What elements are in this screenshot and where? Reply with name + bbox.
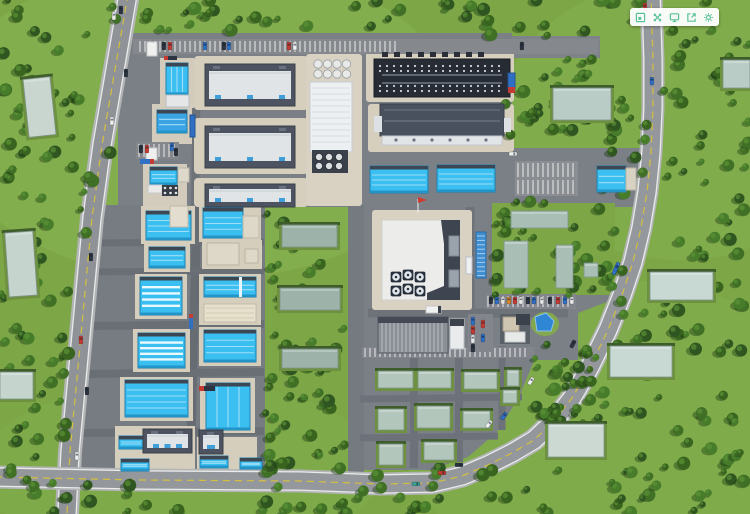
trees <box>574 363 579 368</box>
trees <box>696 246 699 249</box>
truck-body <box>508 73 515 89</box>
trees <box>560 126 564 130</box>
road-car <box>79 336 83 344</box>
trees <box>2 338 6 342</box>
blue-warehouse <box>240 467 262 470</box>
trees <box>493 274 498 279</box>
settings-button[interactable] <box>702 11 715 24</box>
trees <box>227 25 233 31</box>
roof-dots <box>400 85 402 87</box>
trees <box>55 46 59 50</box>
trees <box>672 89 677 94</box>
road-car <box>412 482 420 486</box>
trees <box>725 234 731 240</box>
trees <box>1 86 6 91</box>
trees <box>281 510 284 513</box>
roof-dots <box>393 90 395 92</box>
parked-car <box>482 322 485 324</box>
trees <box>637 409 642 414</box>
parked-car <box>527 299 530 301</box>
green-pad <box>549 425 603 427</box>
trees <box>618 267 623 272</box>
parked-car <box>471 317 475 325</box>
trees <box>661 311 664 314</box>
trees <box>621 104 625 108</box>
white-wing <box>504 118 511 132</box>
green-pad <box>651 273 712 275</box>
trees <box>715 68 720 73</box>
trees <box>48 378 53 383</box>
roof-dots <box>442 70 444 72</box>
roof-dots <box>379 70 381 72</box>
blue-warehouse <box>370 191 428 194</box>
blue-warehouse <box>121 469 149 472</box>
cooling-fans <box>315 162 322 169</box>
parked-car <box>204 44 207 46</box>
blue-warehouse <box>125 415 188 418</box>
car <box>513 153 515 156</box>
beige-annex <box>178 168 189 182</box>
roof-dots <box>421 85 423 87</box>
dorm-building <box>556 245 573 288</box>
road-car <box>80 338 83 340</box>
blue-warehouse <box>125 380 188 417</box>
parked-car <box>293 42 297 50</box>
overview-icon <box>635 12 646 23</box>
trees <box>318 505 323 510</box>
parked-car <box>170 143 174 151</box>
trees <box>22 192 26 196</box>
trees <box>739 476 745 482</box>
trees <box>59 334 64 339</box>
dorm-building <box>505 242 527 244</box>
blue-warehouse <box>166 63 188 67</box>
truck-cab <box>189 314 193 318</box>
parked-car <box>140 147 143 149</box>
trees <box>639 169 643 173</box>
roof-dots <box>414 65 416 67</box>
trees <box>63 99 67 103</box>
trees <box>50 147 56 153</box>
trees <box>79 207 82 210</box>
cooling-fans <box>335 162 342 169</box>
roof-dots <box>449 85 451 87</box>
factory-building <box>215 157 221 161</box>
roof-dots <box>484 85 486 87</box>
road-car <box>459 464 461 467</box>
trees <box>82 189 85 192</box>
foundation-pad <box>414 403 453 406</box>
blue-warehouse <box>149 266 185 269</box>
trees <box>670 158 674 162</box>
roof-dots <box>386 70 388 72</box>
factory-building <box>209 133 291 161</box>
trees <box>532 402 537 407</box>
dorm-building <box>585 264 597 266</box>
trees <box>397 494 401 498</box>
cooling-fans <box>169 191 173 195</box>
trees <box>267 434 272 439</box>
green-pad <box>0 372 33 399</box>
parked-car <box>175 150 178 152</box>
foundation-pad <box>379 444 403 465</box>
hvac-fan <box>407 274 410 277</box>
factory-building <box>151 431 158 434</box>
roof-dots <box>428 65 430 67</box>
trees <box>30 482 35 487</box>
trees <box>13 13 18 18</box>
parked-car <box>287 42 291 50</box>
trees <box>70 135 73 138</box>
export-icon <box>686 12 697 23</box>
beige-annex <box>170 206 188 227</box>
trees <box>340 499 344 503</box>
foundation-pad <box>378 409 404 430</box>
trees <box>445 0 450 5</box>
industrial-park-3d-scene[interactable] <box>0 0 750 514</box>
green-pad <box>280 288 340 310</box>
workshop-roofband <box>378 317 448 323</box>
green-pad <box>281 289 339 291</box>
blue-warehouse-striped <box>140 277 182 281</box>
trees <box>524 487 527 490</box>
trees <box>263 18 268 23</box>
trees <box>631 153 636 158</box>
trees <box>19 332 23 336</box>
roof-dots <box>456 65 458 67</box>
blue-warehouse <box>204 330 256 334</box>
trees <box>341 442 345 446</box>
trees <box>696 492 701 497</box>
doors <box>394 138 397 141</box>
trees <box>587 367 590 370</box>
foundation-pad <box>375 368 416 371</box>
green-pad <box>277 285 343 288</box>
roof-dots <box>470 90 472 92</box>
trees <box>166 27 169 30</box>
parked-car <box>163 44 166 46</box>
parked-car <box>162 42 166 50</box>
trees <box>640 496 643 499</box>
parked-car <box>508 299 511 301</box>
parked-car <box>171 145 174 147</box>
factory-building <box>279 186 286 189</box>
trees <box>143 501 148 506</box>
trees <box>50 480 54 484</box>
trees <box>39 195 43 199</box>
road-car <box>455 463 463 467</box>
trees <box>541 409 546 414</box>
trees <box>642 310 646 314</box>
trees <box>396 5 401 10</box>
roof-dots <box>477 70 479 72</box>
trees <box>343 509 348 514</box>
trees <box>691 253 695 257</box>
trees <box>85 173 90 178</box>
roof-dots <box>456 70 458 72</box>
trees <box>40 391 43 394</box>
trees <box>582 255 588 261</box>
parked-car <box>481 320 485 328</box>
roof-dots <box>456 90 458 92</box>
trees <box>590 286 593 289</box>
factory-building <box>247 157 253 161</box>
trees <box>433 470 438 475</box>
roof-dots <box>477 90 479 92</box>
road-car <box>124 69 128 77</box>
trees <box>720 392 724 396</box>
trees <box>7 175 10 178</box>
trees <box>647 473 650 476</box>
factory-building <box>213 186 220 189</box>
truck-body <box>140 159 150 164</box>
export-button[interactable] <box>685 11 698 24</box>
trees <box>526 197 531 202</box>
trees <box>529 109 533 113</box>
trees <box>674 305 680 311</box>
trees <box>7 469 12 474</box>
trees <box>579 377 584 382</box>
hvac-fan <box>395 290 398 293</box>
roof-dots <box>421 90 423 92</box>
trees <box>275 484 279 488</box>
trees <box>17 104 21 108</box>
roof-dots <box>470 85 472 87</box>
factory-building <box>207 432 214 435</box>
foundation-pad <box>419 372 450 374</box>
trees <box>486 30 492 36</box>
green-pad <box>283 350 337 352</box>
roof-dots <box>379 65 381 67</box>
blue-warehouse <box>121 459 149 463</box>
trees <box>727 475 732 480</box>
trees <box>535 288 538 291</box>
dorm-building <box>504 241 528 288</box>
trees <box>619 97 623 101</box>
trees <box>746 41 749 44</box>
foundation-pad <box>379 410 403 412</box>
blue-warehouse <box>597 190 626 193</box>
parked-car <box>139 145 143 153</box>
monitor-icon <box>669 12 680 23</box>
parked-car <box>472 337 475 339</box>
parked-car <box>495 297 499 304</box>
trees <box>726 340 730 344</box>
trees <box>263 410 266 413</box>
trees <box>297 503 302 508</box>
trees <box>629 115 632 118</box>
trees <box>265 450 270 455</box>
roof-dots <box>393 70 395 72</box>
trees <box>628 468 633 473</box>
trees <box>267 461 272 466</box>
roof-dots <box>456 85 458 87</box>
trees <box>542 74 545 77</box>
roof-dots <box>442 65 444 67</box>
trees <box>641 331 647 337</box>
trees <box>702 255 706 259</box>
trees <box>537 111 540 114</box>
parked-car <box>520 299 523 301</box>
factory-building <box>247 198 253 202</box>
blue-warehouse <box>206 383 250 387</box>
trees <box>64 288 68 292</box>
roof-dots <box>393 85 395 87</box>
trees <box>676 52 681 57</box>
parked-car <box>521 44 524 46</box>
roof-dots <box>449 65 451 67</box>
green-pad <box>550 85 614 88</box>
trees <box>736 195 741 200</box>
trees <box>694 325 699 330</box>
trees <box>283 504 288 509</box>
trees <box>125 480 131 486</box>
roof-dots <box>428 85 430 87</box>
trees <box>550 384 556 390</box>
road-car <box>76 454 79 456</box>
trees <box>188 21 191 24</box>
trees <box>612 228 616 232</box>
fullscreen-button[interactable] <box>651 11 664 24</box>
trees <box>643 121 647 125</box>
parked-car <box>288 44 291 46</box>
trees <box>709 27 713 31</box>
parked-car <box>472 328 475 330</box>
road-car <box>110 117 114 125</box>
parked-car <box>513 297 517 304</box>
white-wing <box>374 116 382 132</box>
trees <box>42 33 47 38</box>
trees <box>693 37 696 40</box>
doors <box>412 138 415 141</box>
trees <box>275 429 278 432</box>
trees <box>287 393 291 397</box>
roof-dots <box>407 90 409 92</box>
silo-tanks <box>323 70 331 78</box>
trees <box>734 38 738 42</box>
blue-warehouse <box>157 131 187 134</box>
factory-building <box>279 66 286 69</box>
green-pad <box>647 269 716 272</box>
parked-car <box>519 297 523 304</box>
overview-button[interactable] <box>634 11 647 24</box>
trees <box>9 166 13 170</box>
parked-car <box>169 44 172 46</box>
trees <box>541 22 545 26</box>
trees <box>699 131 703 135</box>
roof-dots <box>386 65 388 67</box>
parked-car <box>168 42 172 50</box>
trees <box>691 344 697 350</box>
trees <box>316 389 320 393</box>
roof-dots <box>442 90 444 92</box>
trees <box>478 470 484 476</box>
monitor-button[interactable] <box>668 11 681 24</box>
trees <box>190 3 196 9</box>
road-car <box>120 8 123 10</box>
trees <box>276 262 279 265</box>
trees <box>608 148 613 153</box>
white-truck <box>466 257 472 274</box>
roof-dots <box>491 65 493 67</box>
white-truck <box>147 42 157 56</box>
trees <box>33 454 36 457</box>
trees <box>531 235 534 238</box>
green-pad <box>650 272 713 300</box>
trees <box>13 437 18 442</box>
trees <box>69 163 74 168</box>
trees <box>265 211 268 214</box>
trees <box>275 16 278 19</box>
foundation-pad <box>504 367 522 370</box>
trees <box>503 493 508 498</box>
green-pad <box>282 225 337 247</box>
trees <box>588 56 592 60</box>
trees <box>731 100 734 103</box>
gable-roof-building <box>380 104 504 136</box>
trees <box>516 23 521 28</box>
trees <box>359 487 364 492</box>
roof-dots <box>491 90 493 92</box>
trees <box>642 136 646 140</box>
trees <box>571 380 575 384</box>
road-car <box>112 12 116 20</box>
trees <box>72 92 75 95</box>
trees <box>515 288 518 291</box>
foundation-pad <box>508 371 518 373</box>
foundation-pad <box>425 443 453 445</box>
road-car <box>438 471 446 475</box>
trees <box>467 2 472 7</box>
parked-car <box>472 346 475 348</box>
parked-car <box>557 299 560 301</box>
trees <box>6 139 12 145</box>
truck-body <box>189 318 193 329</box>
cooling-fans <box>174 191 178 195</box>
trees <box>583 346 588 351</box>
road-car <box>85 387 89 395</box>
blue-warehouse <box>200 466 228 469</box>
roof-dots <box>435 85 437 87</box>
roof-dots <box>407 85 409 87</box>
trees <box>683 40 687 44</box>
trees <box>307 431 312 436</box>
roof-dots <box>379 85 381 87</box>
roof-dots <box>414 70 416 72</box>
settings-icon <box>703 12 714 23</box>
trees <box>271 276 275 280</box>
dorm-building <box>557 246 572 248</box>
truck-body <box>204 386 215 391</box>
trees <box>600 388 605 393</box>
scene-viewport[interactable] <box>0 0 750 514</box>
factory-building <box>215 95 221 99</box>
cooling-fans <box>335 153 342 160</box>
blue-warehouse-striped <box>138 333 185 337</box>
parked-car <box>146 147 149 149</box>
factory-building <box>213 66 220 69</box>
parked-car <box>556 297 560 304</box>
foundation-pad <box>417 406 450 428</box>
roof-dots <box>407 70 409 72</box>
trees <box>144 9 149 14</box>
parked-car <box>227 42 231 50</box>
parked-car <box>548 297 552 304</box>
blue-warehouse <box>157 110 187 114</box>
trees <box>609 273 612 276</box>
trees <box>700 502 703 505</box>
trees <box>691 508 694 511</box>
